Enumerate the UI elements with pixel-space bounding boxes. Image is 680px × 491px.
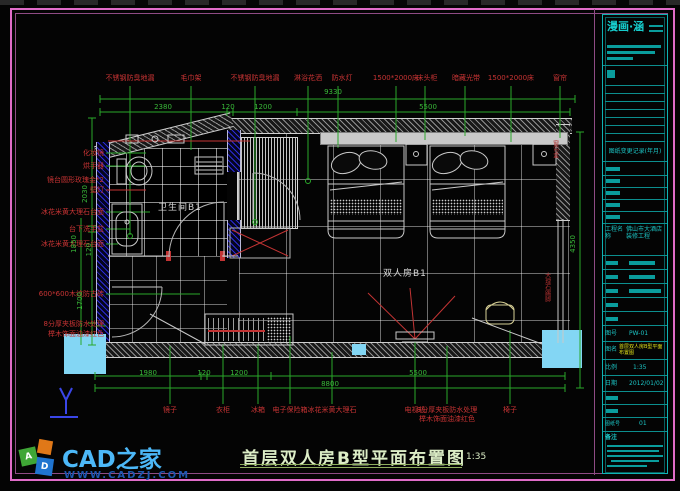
sheet-no-value: 01: [639, 421, 647, 428]
room-label-bathroom: 卫生间B1: [158, 200, 202, 213]
dim-text: 1200: [230, 370, 248, 377]
plan-label-vertical: 大理石踢脚: [543, 272, 550, 302]
plan-label: 1500*2000床: [373, 74, 419, 83]
chair-linework: [486, 302, 514, 324]
row-label-bar: [606, 275, 618, 279]
row-divider: [603, 161, 667, 162]
row-line: [603, 175, 667, 176]
notes-label: 备注: [605, 435, 617, 442]
drawing-no-value: PW-01: [629, 331, 648, 338]
dim-text: 5500: [409, 370, 427, 377]
logo-subtext-bar: [649, 30, 663, 32]
date-label: 日期: [605, 381, 617, 388]
plan-label: 不锈钢防臭地漏: [231, 74, 280, 83]
door-swing-arcs: [112, 173, 300, 337]
row-line: [603, 404, 667, 405]
project-name-value: 佛山市大酒店装修工程: [626, 227, 665, 241]
note-line: [607, 445, 663, 447]
drawing-title-scale: 1:35: [466, 452, 486, 462]
scale-label: 比例: [605, 365, 617, 372]
logo-cube-orange: [37, 439, 53, 455]
plan-label: 壁灯: [4, 186, 104, 195]
text-bar: [607, 57, 633, 60]
row-label-bar: [606, 191, 620, 195]
plan-label: 衣柜: [216, 406, 230, 415]
ucs-axis-icon: [50, 388, 78, 417]
plan-label: 椅子: [503, 406, 517, 415]
dim-text: 120: [197, 370, 210, 377]
dim-text: 4350: [570, 235, 577, 253]
plan-label: 榉木饰面油漆红色: [419, 415, 475, 424]
plan-label: 台下洗手盆: [4, 225, 104, 234]
text-bar: [607, 51, 655, 54]
row-value-bar: [629, 261, 655, 265]
dim-text: 1200: [254, 104, 272, 111]
text-bar: [607, 45, 661, 48]
row-divider: [603, 391, 667, 392]
row-divider: [603, 223, 667, 224]
note-line: [611, 460, 659, 462]
title-underline-1: [240, 464, 462, 465]
row-line: [603, 311, 667, 312]
sheet-no-label: 图纸号: [605, 422, 620, 428]
plan-label: 毛巾架: [181, 74, 202, 83]
row-line: [605, 85, 665, 86]
drawing-name-label: 图名: [605, 347, 617, 354]
row-line: [605, 101, 665, 102]
row-label-bar: [606, 396, 618, 400]
logo-subtext-bar: [649, 25, 663, 27]
plan-label: 窗帘: [553, 74, 567, 83]
drawing-name-value: 首层双人房B型平面布置图: [619, 345, 665, 357]
row-divider: [603, 359, 667, 360]
row-label-bar: [606, 289, 618, 293]
revision-header: 图纸变更记录(年月): [603, 149, 667, 156]
row-label-bar: [606, 409, 618, 413]
row-label-bar: [606, 167, 620, 171]
dim-text: 8800: [321, 381, 339, 388]
row-value-bar: [629, 289, 661, 293]
titleblock: 漫画·涵 图纸变更记录(年月) 工程名称 佛山市大酒店装修工程 图号 PW-01: [602, 14, 668, 474]
dim-text: 5500: [419, 104, 437, 111]
row-line: [603, 297, 667, 298]
brand-url: WWW.CADZJ.COM: [64, 470, 190, 481]
row-line: [605, 93, 665, 94]
note-line: [607, 450, 659, 452]
stamp-glyph: [607, 70, 615, 78]
dim-text: 120: [221, 104, 234, 111]
dim-text: 120: [86, 243, 93, 256]
row-label-bar: [606, 203, 620, 207]
row-line: [605, 117, 665, 118]
dim-text: 1980: [139, 370, 157, 377]
dim-text: 2030: [82, 185, 89, 203]
plan-label: 化妆镜: [4, 149, 104, 158]
row-label-bar: [606, 303, 618, 307]
row-label-bar: [606, 215, 620, 219]
row-line: [605, 125, 665, 126]
plan-label: 镜台圆形玫瑰金*2: [4, 176, 104, 185]
brand-name: CAD之家: [62, 440, 162, 474]
dim-text: 1700: [77, 292, 84, 310]
dim-text: 9330: [324, 89, 342, 96]
row-label-bar: [606, 179, 620, 183]
plan-label: 8分厚夹板防水处理: [417, 406, 477, 415]
plan-label: 电子保险箱: [273, 406, 308, 415]
plan-label-vertical: 窗帘盒: [551, 140, 558, 158]
row-divider: [603, 431, 667, 432]
dim-text: 1850: [71, 235, 78, 253]
row-line: [605, 109, 665, 110]
row-divider: [603, 341, 667, 342]
logo-cube-blue: D: [35, 457, 54, 476]
furniture-linework: [108, 135, 563, 345]
plan-label: 防水灯: [332, 74, 353, 83]
watermark-logo: A D CAD之家 WWW.CADZJ.COM: [12, 436, 232, 488]
cad-drawing-canvas[interactable]: 不锈钢防臭地漏 毛巾架 不锈钢防臭地漏 淋浴花洒 防水灯 1500*2000床 …: [0, 0, 680, 491]
row-divider: [603, 325, 667, 326]
row-line: [603, 187, 667, 188]
row-line: [603, 283, 667, 284]
row-line: [605, 133, 665, 134]
plan-label: 榉木饰面油漆红色: [4, 330, 104, 339]
note-line: [607, 465, 647, 467]
row-line: [603, 211, 667, 212]
title-underline-2: [240, 467, 462, 468]
company-logo: 漫画·涵: [607, 21, 644, 34]
drawing-no-label: 图号: [605, 331, 617, 338]
row-divider: [603, 65, 667, 66]
plan-label: 1500*2000床: [488, 74, 534, 83]
dim-text: 2380: [154, 104, 172, 111]
date-value: 2012/01/02: [629, 381, 664, 388]
row-line: [603, 269, 667, 270]
cube-letter-d: D: [40, 461, 49, 472]
row-label-bar: [606, 317, 618, 321]
plan-label: 不锈钢防臭地漏: [106, 74, 155, 83]
dimension-lines: [81, 86, 584, 404]
scale-value: 1:35: [633, 365, 646, 372]
drawing-title: 首层双人房B型平面布置图: [242, 444, 466, 469]
row-line: [605, 141, 665, 142]
plan-label: 镜子: [163, 406, 177, 415]
row-value-bar: [629, 275, 655, 279]
plan-label: 暗藏光带: [452, 74, 480, 83]
red-annotations: [106, 141, 455, 339]
row-divider: [603, 255, 667, 256]
plan-label: 600*600木纹防古砖: [4, 290, 104, 299]
cube-letter-a: A: [24, 451, 33, 462]
room-label-bedroom: 双人房B1: [383, 266, 427, 279]
plan-label: 淋浴花洒: [294, 74, 322, 83]
row-line: [603, 199, 667, 200]
project-name-label: 工程名称: [605, 227, 625, 241]
plan-label: 床头柜: [417, 74, 438, 83]
plan-label: 8分厚夹板防水处理: [4, 320, 104, 329]
plan-label: 冰花米黄大理石台面: [4, 208, 104, 217]
row-divider: [603, 375, 667, 376]
row-divider: [603, 417, 667, 418]
plan-label: 冰花米黄大理石: [308, 406, 357, 415]
note-line: [607, 455, 663, 457]
plan-label: 冰箱: [251, 406, 265, 415]
row-label-bar: [606, 261, 618, 265]
plan-label: 烘手器: [4, 162, 104, 171]
